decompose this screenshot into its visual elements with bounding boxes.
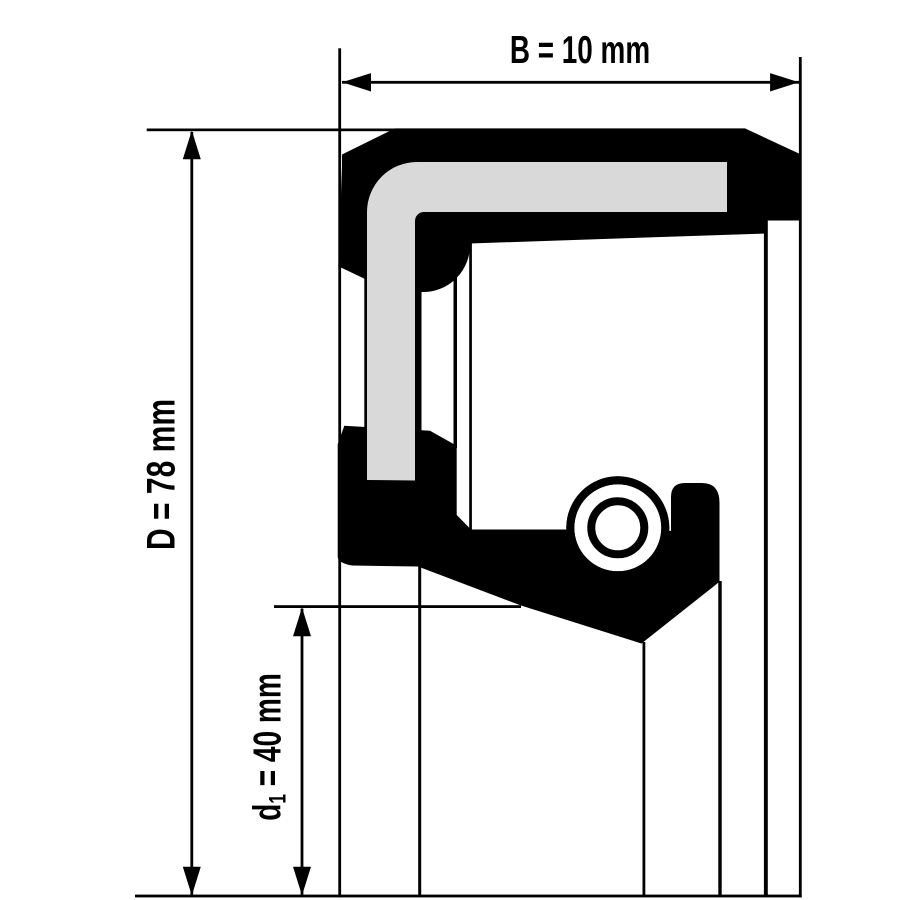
svg-text:B = 10 mm: B = 10 mm xyxy=(510,28,650,72)
svg-text:D = 78 mm: D = 78 mm xyxy=(139,399,183,550)
